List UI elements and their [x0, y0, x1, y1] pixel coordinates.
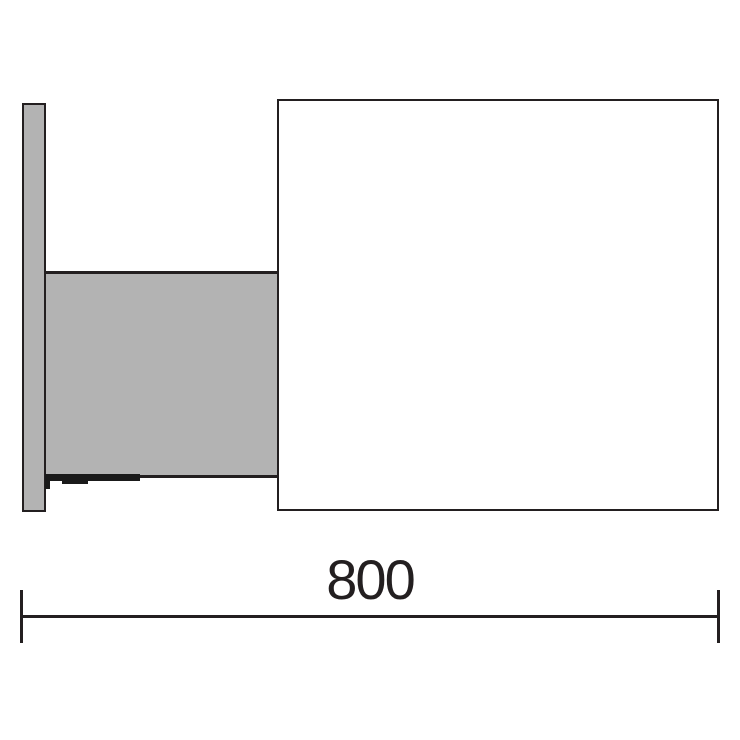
cabinet-body-shape: [277, 99, 719, 511]
dimension-line: [21, 615, 719, 618]
drawer-runner-step: [45, 474, 50, 489]
drawer-body-shape: [44, 271, 280, 478]
technical-drawing-canvas: 800: [0, 0, 740, 740]
drawer-runner-tab: [62, 474, 88, 484]
drawer-runner-strip: [46, 474, 140, 481]
dimension-label: 800: [21, 552, 719, 608]
side-panel-shape: [22, 103, 46, 512]
